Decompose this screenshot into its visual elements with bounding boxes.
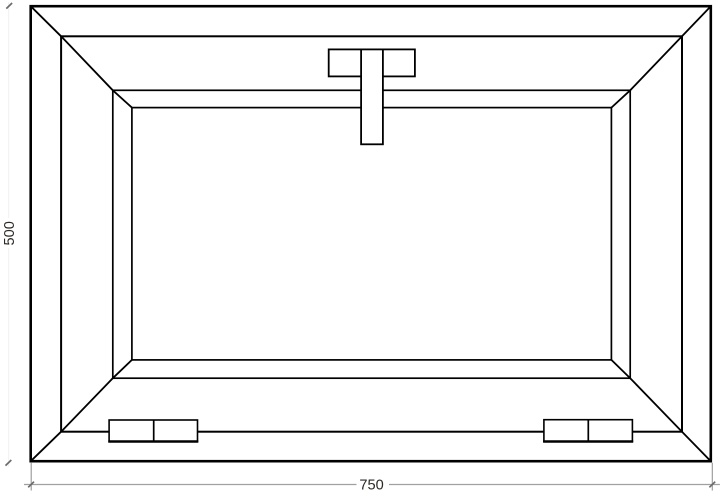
svg-text:750: 750 [359,478,383,492]
svg-text:500: 500 [2,221,18,245]
